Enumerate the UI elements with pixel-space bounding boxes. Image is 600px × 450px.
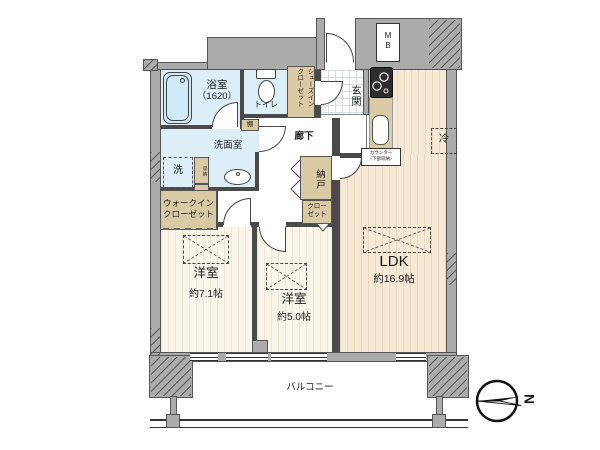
bedroom1-size-label: 約7.1帖: [176, 289, 236, 301]
compass-icon: N: [474, 378, 540, 426]
balcony-post-left: [166, 414, 180, 428]
washbasin-faucet: [236, 172, 240, 176]
ceiling-box-ldk: [363, 227, 431, 253]
washer-label: 洗: [163, 165, 193, 177]
top-left-corner-hatch: [143, 59, 158, 71]
ceiling-box-bedroom1: [183, 235, 229, 264]
meter-box: M B: [376, 23, 400, 62]
closet-box: クロー ゼット: [302, 200, 332, 224]
balcony-label: バルコニー: [269, 383, 351, 394]
toilet-label: トイレ: [246, 100, 286, 109]
bedroom1-door-arc: [223, 198, 251, 225]
stove-icon: [370, 67, 393, 98]
shelf-box: 棚: [241, 119, 259, 131]
balcony-pillar-right-hatch: [429, 357, 467, 396]
washroom-label: 洗面室: [199, 141, 257, 152]
entry-side-wall: [316, 18, 325, 70]
balcony-pillar-left-hatch: [151, 357, 191, 396]
balcony-railing: [150, 419, 468, 428]
toilet-tank: [256, 69, 276, 79]
storage-box: 収納: [194, 157, 209, 184]
right-wall-hatch: [447, 253, 456, 285]
window-bedroom1: [190, 353, 218, 361]
closet-door-chevron-icon: [316, 223, 330, 232]
entrance-door-arc: [326, 33, 354, 62]
shoes-closet-label: シューズイン クローゼット: [289, 68, 314, 116]
entrance-label: 玄関: [344, 78, 360, 114]
counter-label-box: カウンター （下部収納）: [361, 148, 401, 166]
floorplan-canvas: 洗 収納 棚 カウンター （下部収納） 冷 シューズイン クローゼット ウォーク…: [0, 0, 600, 450]
refrigerator-label: 冷: [431, 134, 457, 146]
wall-right: [446, 62, 457, 362]
wic-folding-door: [163, 228, 213, 231]
washroom-door-arc: [259, 126, 286, 152]
bedroom2-size-label: 約5.0帖: [264, 312, 324, 324]
x-mark-icon: [364, 228, 430, 252]
folding-door-icon: [290, 159, 301, 199]
hallway-label: 廊下: [283, 132, 325, 143]
ldk-size-label: 約16.9帖: [361, 273, 427, 285]
ceiling-box-bedroom2: [266, 263, 307, 290]
x-mark-icon: [267, 264, 306, 289]
bathtub-drain: [180, 78, 185, 83]
window-bedroom2: [271, 353, 327, 361]
left-wall-hatch-lower: [151, 328, 160, 358]
wall-sic-entrance-lower: [315, 105, 321, 118]
storeroom-label: 納戸: [308, 162, 324, 196]
top-right-wall-hatch: [429, 20, 460, 68]
kitchen-sink: [372, 115, 389, 145]
ldk-label: LDK: [363, 253, 425, 270]
bathroom-label: 浴室: [187, 79, 247, 91]
wall-bedroom1-bedroom2: [252, 227, 257, 353]
wall-washroom-top-left: [160, 125, 212, 129]
wall-ldk-lower: [332, 180, 340, 353]
window-bedroom1b: [226, 353, 268, 361]
walk-in-closet-label: ウォークイン クローゼット: [160, 198, 217, 220]
bathroom-size-label: （1620）: [187, 92, 247, 103]
bedroom1-label: 洋室: [176, 266, 236, 280]
bathtub-inner: [166, 75, 189, 121]
window-ldk: [396, 353, 426, 361]
left-wall-hatch-upper: [151, 152, 160, 182]
wall-washroom-hall: [255, 152, 259, 190]
wall-ldk-upper: [332, 118, 340, 156]
bedroom2-label: 洋室: [264, 292, 324, 306]
x-mark-icon: [184, 236, 228, 263]
balcony-post-right: [432, 414, 446, 428]
compass-north-label: N: [521, 394, 537, 404]
